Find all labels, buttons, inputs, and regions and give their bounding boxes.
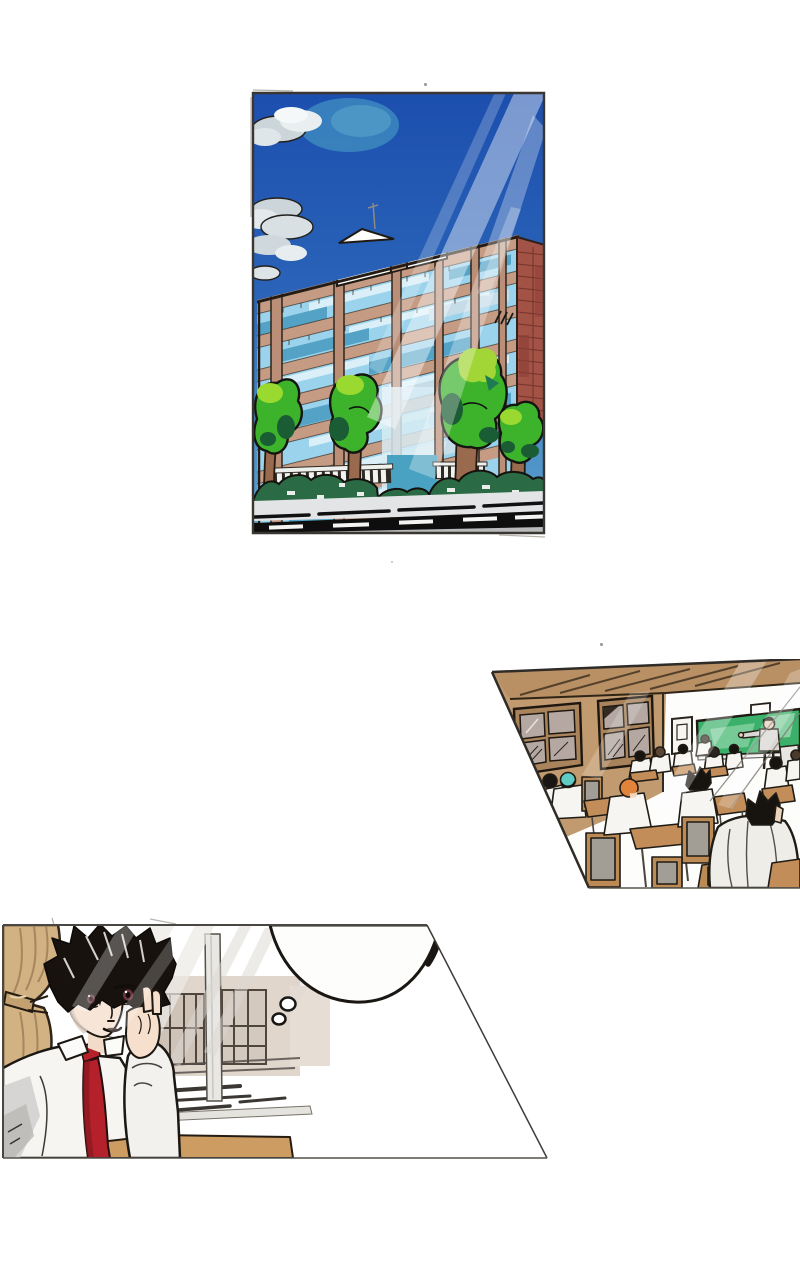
ink-speck <box>391 561 393 563</box>
sleeve <box>124 1042 180 1158</box>
panel-school-exterior <box>249 87 549 539</box>
panel-daydreaming-student <box>0 916 560 1164</box>
ink-speck <box>424 83 427 86</box>
panel-classroom <box>480 659 800 889</box>
school-exterior-art <box>249 87 549 539</box>
classroom-art <box>480 659 800 889</box>
bubble-trail-dot <box>281 998 296 1011</box>
daydream-art <box>0 916 560 1164</box>
collar-right <box>104 1036 124 1056</box>
ink-speck <box>600 643 603 646</box>
window-mullion <box>205 934 222 1101</box>
bubble-trail-dot <box>273 1014 286 1025</box>
pencil-marks <box>52 918 176 925</box>
wall-sign <box>751 703 770 715</box>
window-1 <box>514 703 582 775</box>
comic-page <box>0 0 800 1280</box>
tree-4 <box>499 402 543 463</box>
